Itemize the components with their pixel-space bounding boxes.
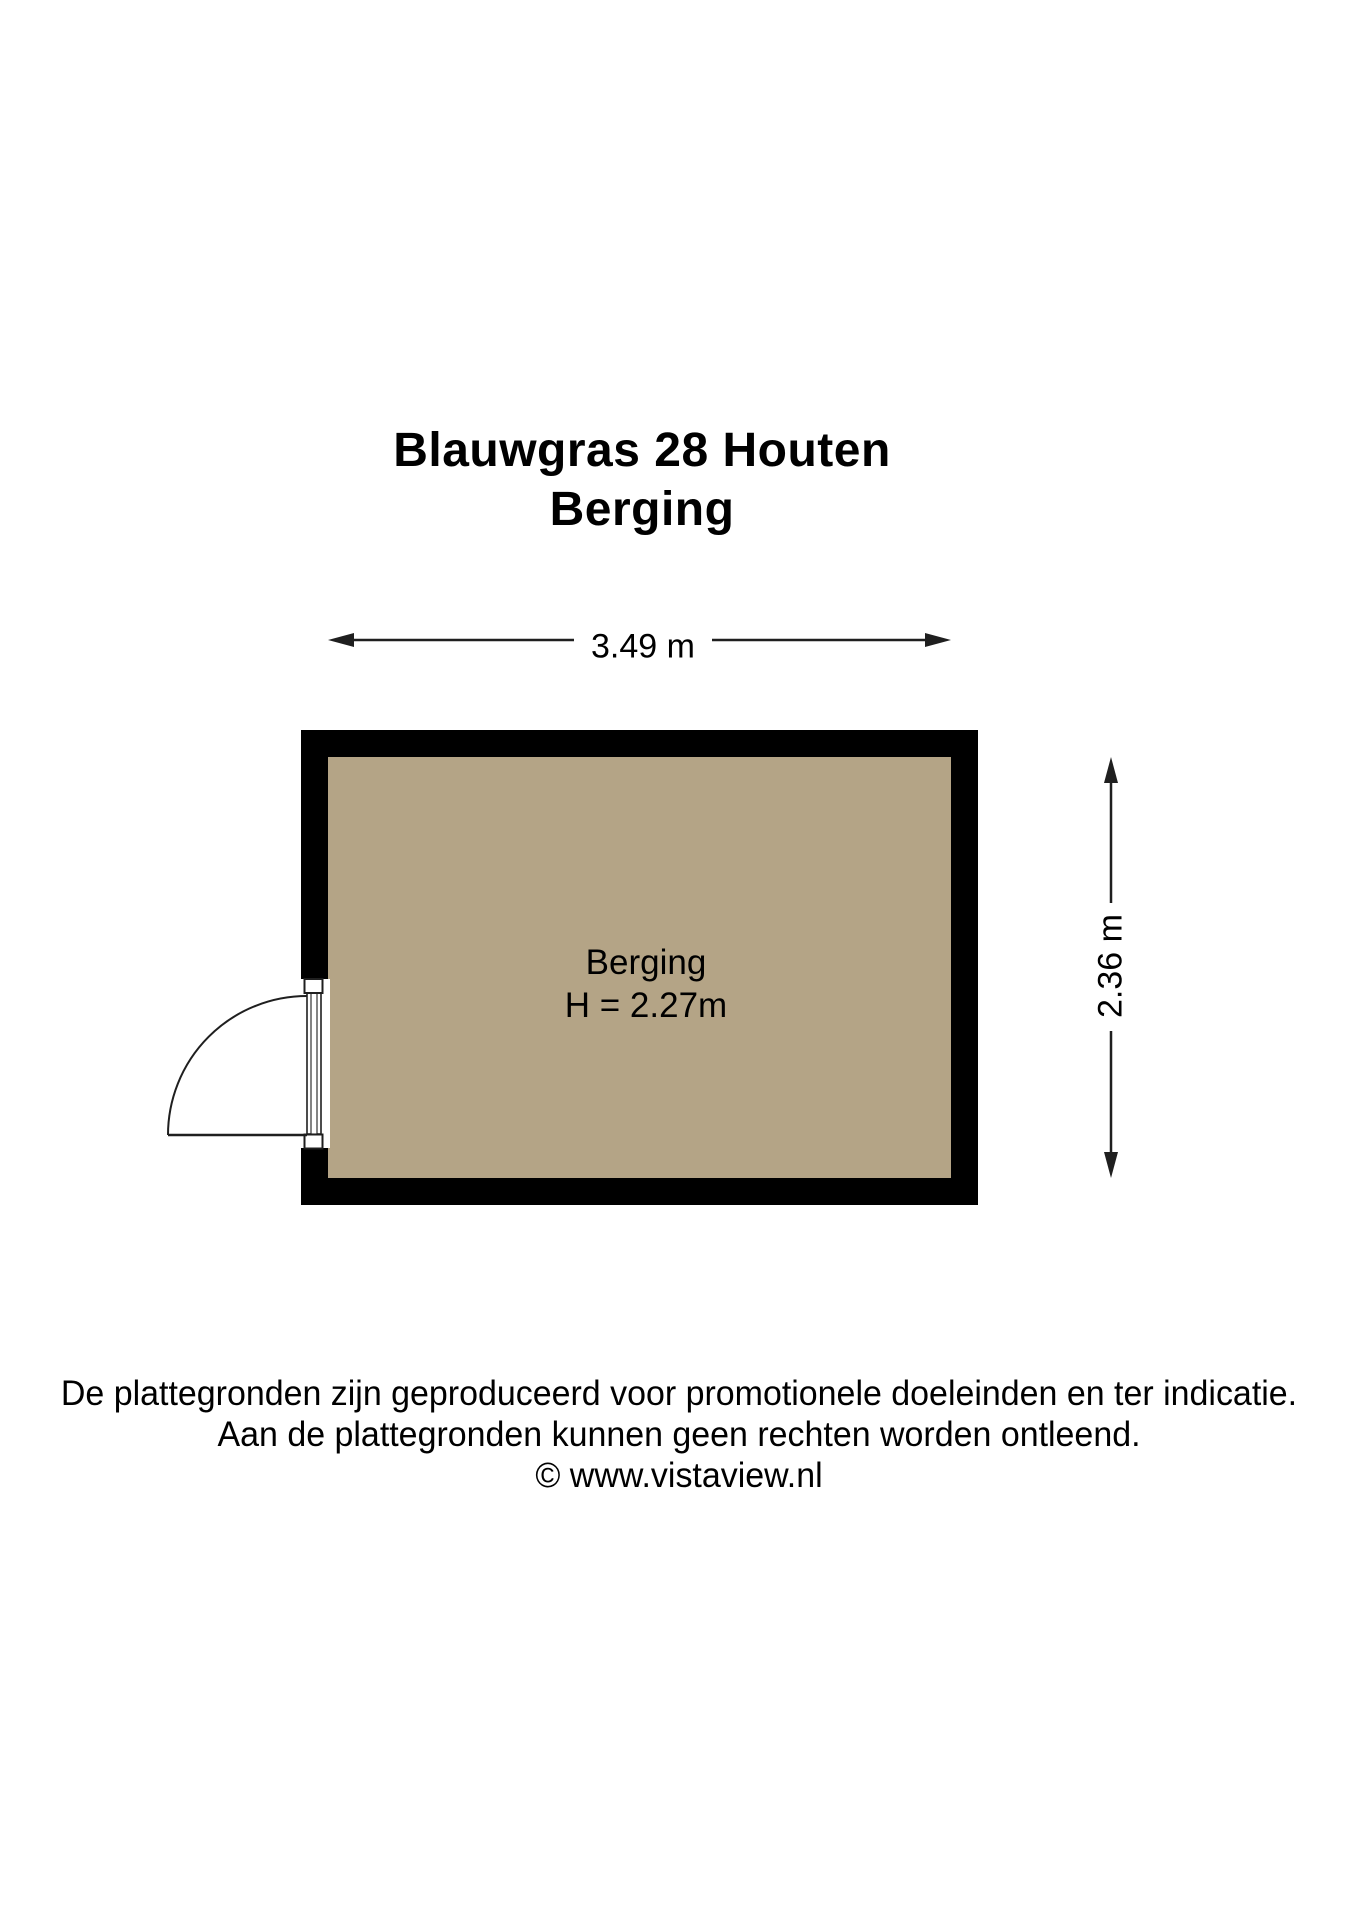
- wall-top: [301, 730, 978, 757]
- disclaimer-line-2: Aan de plattegronden kunnen geen rechten…: [20, 1414, 1337, 1455]
- floorplan-page: Blauwgras 28 Houten Berging: [0, 0, 1358, 1920]
- wall-left-lower: [301, 1148, 328, 1178]
- wall-left-upper: [301, 757, 328, 979]
- height-dimension-label: 2.36 m: [1092, 914, 1131, 1018]
- width-dimension-label: 3.49 m: [591, 628, 695, 667]
- arrow-up-icon: [1104, 757, 1118, 783]
- room-label: Berging H = 2.27m: [565, 941, 727, 1027]
- disclaimer-line-1: De plattegronden zijn geproduceerd voor …: [20, 1373, 1337, 1414]
- room-name: Berging: [565, 941, 727, 984]
- disclaimer: De plattegronden zijn geproduceerd voor …: [0, 1373, 1358, 1496]
- wall-right: [951, 757, 978, 1178]
- arrow-left-icon: [328, 633, 354, 647]
- copyright-line: © www.vistaview.nl: [20, 1455, 1337, 1496]
- arrow-down-icon: [1104, 1152, 1118, 1178]
- wall-bottom: [301, 1178, 978, 1205]
- door-panel-inner: [311, 993, 317, 1134]
- room-ceiling-height: H = 2.27m: [565, 984, 727, 1027]
- arrow-right-icon: [925, 633, 951, 647]
- door-jamb-bottom: [305, 1135, 323, 1149]
- door-jamb-top: [305, 979, 323, 993]
- door-swing-arc: [168, 996, 307, 1135]
